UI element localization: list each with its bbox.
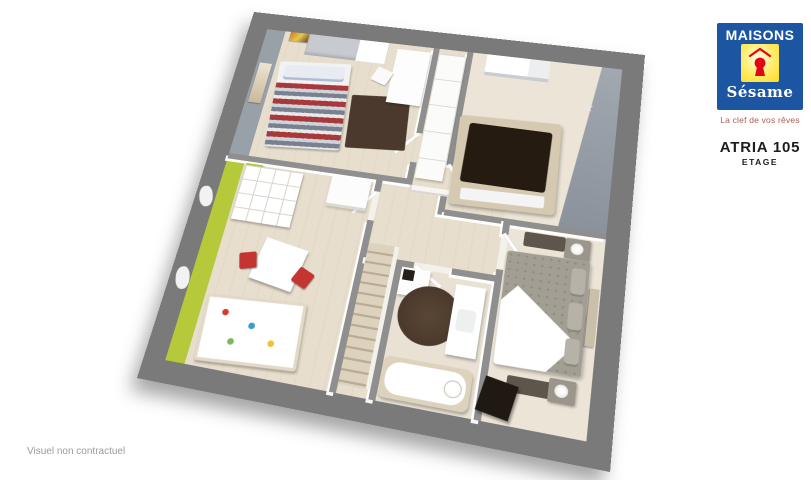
wall-cloud-decal: [199, 185, 213, 207]
master-double-bed: [493, 250, 591, 378]
bedroom1-single-bed: [264, 61, 352, 150]
bathroom-accessory: [402, 269, 415, 281]
branding-block: MAISONS Sésame La clef de vos rêves ATRI…: [705, 23, 811, 167]
logo-text-sesame: Sésame: [727, 83, 794, 101]
page: ✕: [0, 0, 811, 480]
kids-room-red-chair: [239, 251, 256, 269]
floorplan-shadow-wrapper: ✕: [0, 0, 811, 480]
disclaimer-text: Visuel non contractuel: [27, 446, 125, 457]
keyhole-icon: [745, 47, 775, 79]
plan-title: ATRIA 105: [705, 139, 811, 156]
logo-yellow-square: [741, 44, 779, 82]
maisons-sesame-logo: MAISONS Sésame: [717, 23, 803, 110]
bedroom2-double-bed: [448, 115, 562, 216]
kids-room-bed: [193, 293, 308, 372]
floorplan-3d-render: ✕: [137, 12, 645, 472]
plan-subtitle: ETAGE: [705, 157, 811, 167]
master-nightstand: [547, 378, 577, 407]
brand-tagline: La clef de vos rêves: [705, 115, 811, 125]
logo-text-maisons: MAISONS: [726, 27, 795, 43]
kids-room-closet: [325, 175, 372, 211]
